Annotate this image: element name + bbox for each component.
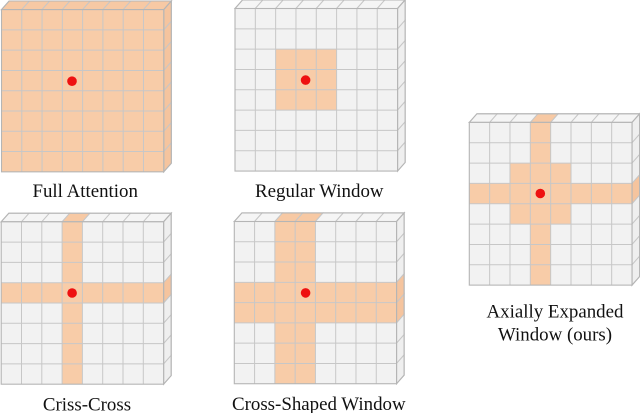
svg-text:Full Attention: Full Attention xyxy=(32,181,138,202)
svg-text:Window (ours): Window (ours) xyxy=(498,325,612,346)
svg-text:Criss-Cross: Criss-Cross xyxy=(43,394,131,413)
svg-text:Cross-Shaped Window: Cross-Shaped Window xyxy=(232,394,406,413)
svg-text:Regular Window: Regular Window xyxy=(255,181,384,202)
svg-text:Axially Expanded: Axially Expanded xyxy=(487,301,624,322)
